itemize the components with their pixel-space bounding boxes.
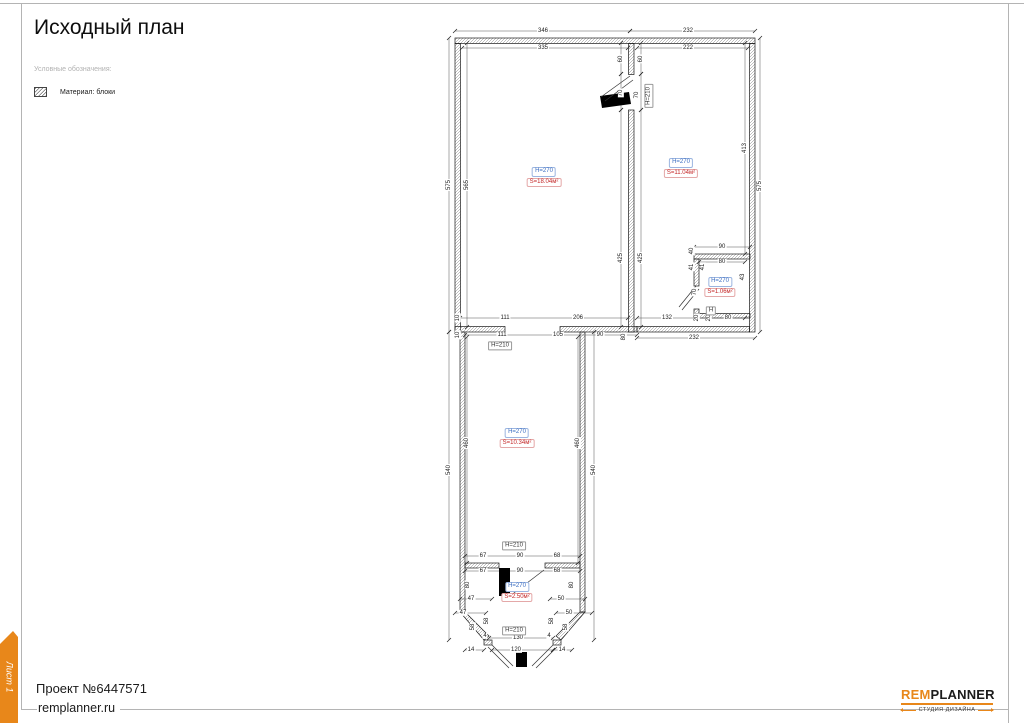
dim-label: 540 <box>446 464 452 476</box>
dim-label: 47 <box>467 596 476 602</box>
sheet-tab-label: Лист 1 <box>4 661 14 692</box>
dim-label: 232 <box>688 335 700 341</box>
dim-label: 425 <box>618 252 624 264</box>
opening-height-label: H <box>706 306 716 315</box>
dim-label: 20 <box>694 314 700 323</box>
dim-label: 540 <box>591 464 597 476</box>
dim-label: 335 <box>537 45 549 51</box>
room-height-label: H=270 <box>532 167 556 177</box>
dim-label: 58 <box>563 623 569 632</box>
dim-label: 130 <box>512 635 524 641</box>
room-label: H=270S=2.50м² <box>501 582 532 602</box>
logo-tagline-row: СТУДИЯ ДИЗАЙНА <box>901 707 993 713</box>
dim-label: 80 <box>621 333 627 342</box>
logo-rem: REM <box>901 687 931 702</box>
opening-height-label: H=210 <box>502 626 526 635</box>
dim-label: 70 <box>618 89 624 98</box>
dim-label: 346 <box>537 28 549 34</box>
dim-label: 41 <box>700 263 706 272</box>
dim-label: 575 <box>446 179 452 191</box>
room-area-label: S=18.04м² <box>527 178 562 188</box>
dim-label: 60 <box>638 55 644 64</box>
room-height-label: H=270 <box>708 277 732 287</box>
logo-underline <box>901 703 993 705</box>
room-label: H=270S=18.04м² <box>527 167 562 187</box>
room-area-label: S=1.06м² <box>704 288 735 298</box>
dim-label: 58 <box>484 617 490 626</box>
dim-label: 90 <box>718 244 727 250</box>
dim-label: 70 <box>692 288 698 297</box>
dim-label: 43 <box>740 273 746 282</box>
room-height-label: H=270 <box>505 582 529 592</box>
room-area-label: S=2.50м² <box>501 593 532 603</box>
tagline-arrow-left-icon <box>901 710 916 711</box>
dim-label: 111 <box>496 332 507 338</box>
dim-label: 58 <box>549 617 555 626</box>
dim-label: 70 <box>634 91 640 100</box>
dim-label: 206 <box>572 315 584 321</box>
room-area-label: S=10.34м² <box>500 439 535 449</box>
project-number: Проект №6447571 <box>36 681 147 696</box>
dim-label: 132 <box>661 315 673 321</box>
opening-height-label: H=210 <box>502 541 526 550</box>
dim-label: 40 <box>689 247 695 256</box>
dim-label: 41 <box>689 263 695 272</box>
room-label: H=270S=11.04м² <box>664 158 698 178</box>
dim-label: 50 <box>557 596 566 602</box>
logo-tagline: СТУДИЯ ДИЗАЙНА <box>919 707 976 713</box>
dim-label: 232 <box>682 28 694 34</box>
opening-height-label: H=210 <box>488 341 512 350</box>
dim-label: 60 <box>618 55 624 64</box>
dim-label: 575 <box>757 180 763 192</box>
dim-label: 50 <box>565 610 574 616</box>
dim-label: 68 <box>553 553 562 559</box>
dim-label: 80 <box>569 581 575 590</box>
room-height-label: H=270 <box>669 158 693 168</box>
dim-label: 120 <box>510 647 522 653</box>
dim-label: 14 <box>558 647 567 653</box>
dim-label: 80 <box>465 581 471 590</box>
room-height-label: H=270 <box>505 428 529 438</box>
dim-label: 425 <box>638 252 644 264</box>
dim-label: 90 <box>516 568 525 574</box>
door-leaf-entry <box>516 652 527 667</box>
remplanner-logo: REMPLANNER СТУДИЯ ДИЗАЙНА <box>901 688 993 713</box>
floor-plan <box>0 0 1024 723</box>
dim-label: 10 <box>455 331 461 340</box>
dim-label: 67 <box>479 568 488 574</box>
dim-label: 413 <box>742 142 748 154</box>
room-label: H=270S=10.34м² <box>500 428 535 448</box>
logo-planner: PLANNER <box>931 687 995 702</box>
logo-wordmark: REMPLANNER <box>901 688 993 702</box>
dim-label: 105 <box>552 332 564 338</box>
sheet-tab: Лист 1 <box>0 630 18 723</box>
dim-label: 565 <box>464 179 470 191</box>
room-area-label: S=11.04м² <box>664 169 698 179</box>
dim-label: 111 <box>499 315 510 321</box>
dim-label: 90 <box>516 553 525 559</box>
dim-label: 58 <box>470 623 476 632</box>
dim-label: 68 <box>553 568 562 574</box>
dim-label: 222 <box>682 45 694 51</box>
dim-label: 10 <box>455 314 461 323</box>
site-url: remplanner.ru <box>37 701 120 715</box>
plan-sheet: Исходный план Условные обозначения: Мате… <box>0 0 1024 723</box>
dim-label: 14 <box>467 647 476 653</box>
room-label: H=270S=1.06м² <box>704 277 735 297</box>
dim-label: 90 <box>596 332 605 338</box>
dim-label: 80 <box>724 315 733 321</box>
dim-label: 460 <box>464 437 470 449</box>
dim-label: 80 <box>718 259 727 265</box>
dim-label: 4 <box>482 633 487 639</box>
dim-label: 67 <box>479 553 488 559</box>
dim-label: 4 <box>546 633 551 639</box>
dim-label: 47 <box>459 610 468 616</box>
tagline-arrow-right-icon <box>978 710 993 711</box>
opening-height-label: H=210 <box>644 84 653 108</box>
dim-label: 460 <box>575 437 581 449</box>
